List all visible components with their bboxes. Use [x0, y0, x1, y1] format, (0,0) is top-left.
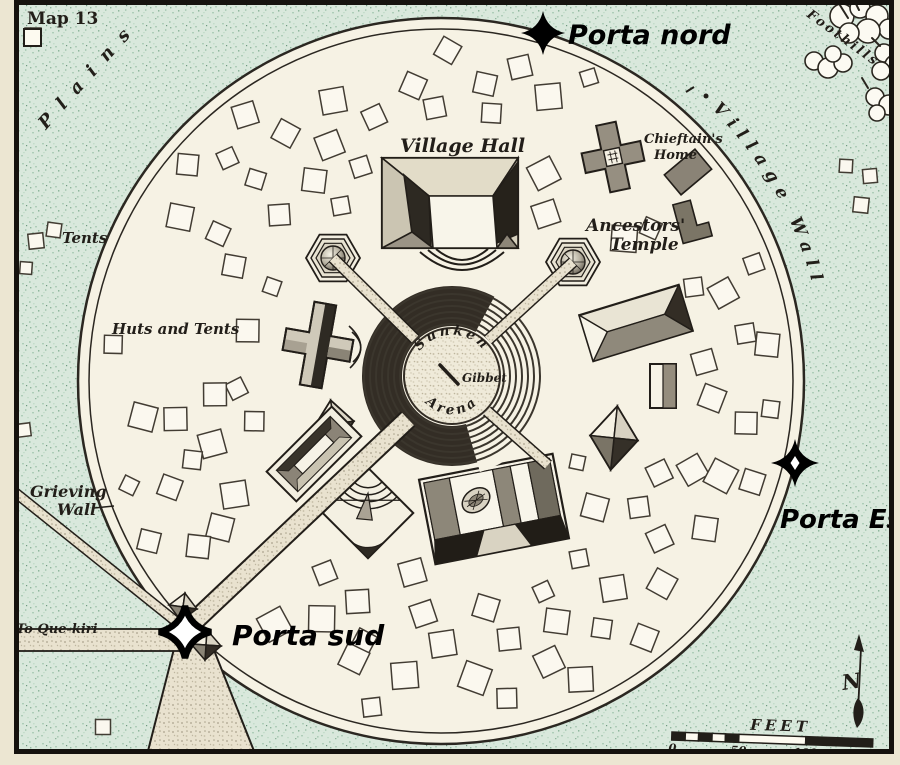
chieftains-home-label: Chieftain's	[644, 132, 723, 147]
hut	[544, 608, 570, 634]
scale-unit-label: FEET	[749, 716, 811, 736]
split-hut	[650, 364, 676, 408]
roof-face	[663, 364, 676, 408]
hut	[166, 203, 194, 231]
hut	[580, 493, 609, 522]
hut	[164, 407, 187, 430]
chieftains-home-label-2: Home	[653, 148, 697, 163]
porta-sud-label[interactable]: Porta sud	[232, 619, 385, 652]
hut	[220, 480, 249, 509]
porta-nord-label[interactable]: Porta nord	[568, 20, 731, 51]
grieving-wall-label-2: Wall	[57, 500, 96, 519]
to-que-kiri-label: To Que-kiri	[16, 622, 98, 637]
gibbet-label: Gibbet	[462, 371, 507, 385]
hut	[362, 697, 382, 717]
hut	[182, 450, 202, 470]
hut	[761, 400, 780, 419]
hut	[268, 204, 290, 226]
tents-label: Tents	[62, 229, 108, 247]
hut	[423, 96, 446, 119]
hut	[839, 159, 853, 173]
hut	[497, 627, 521, 651]
legend-square	[24, 29, 41, 46]
hut	[245, 411, 265, 431]
hut	[391, 661, 419, 689]
hut	[735, 412, 757, 434]
hut	[569, 454, 586, 471]
map-dot	[704, 94, 709, 99]
hut	[46, 222, 62, 238]
hut	[302, 168, 327, 193]
hut	[186, 534, 211, 559]
hut	[507, 54, 532, 79]
hut	[568, 667, 594, 693]
hut	[853, 197, 869, 213]
hut	[96, 720, 111, 735]
hut	[591, 618, 612, 639]
ancestors-temple-label: Ancestors'	[584, 216, 685, 236]
hut	[176, 153, 198, 175]
courtyard	[429, 196, 497, 248]
hut	[345, 589, 369, 613]
hut	[628, 496, 650, 518]
map-title: Map 13	[27, 9, 98, 29]
hut	[473, 72, 498, 97]
village-map: Map 13 Plains Foothills Village Wall Ten…	[0, 0, 900, 765]
hut	[497, 688, 517, 708]
hut	[429, 630, 457, 658]
hut	[236, 319, 259, 342]
ancestors-temple-label-2: Temple	[610, 235, 679, 255]
porta-est-label[interactable]: Porta Est	[780, 505, 900, 535]
hut	[28, 233, 44, 249]
hut	[684, 277, 704, 297]
hut	[692, 516, 718, 542]
hut	[204, 383, 227, 406]
hut	[569, 549, 589, 569]
village-hall-label: Village Hall	[400, 135, 525, 157]
hut	[319, 87, 347, 115]
grieving-wall-label: Grieving	[30, 482, 107, 501]
hut	[600, 575, 628, 603]
hut	[20, 262, 33, 275]
hut	[331, 196, 351, 216]
hut	[481, 103, 501, 123]
hut	[535, 83, 562, 110]
emblem	[604, 148, 623, 167]
hut	[579, 68, 598, 87]
hut	[222, 254, 246, 278]
huts-and-tents-label: Huts and Tents	[111, 320, 240, 338]
hut	[128, 402, 158, 432]
hut	[137, 529, 162, 554]
hut	[735, 323, 756, 344]
hut	[862, 168, 877, 183]
hut	[755, 332, 780, 357]
